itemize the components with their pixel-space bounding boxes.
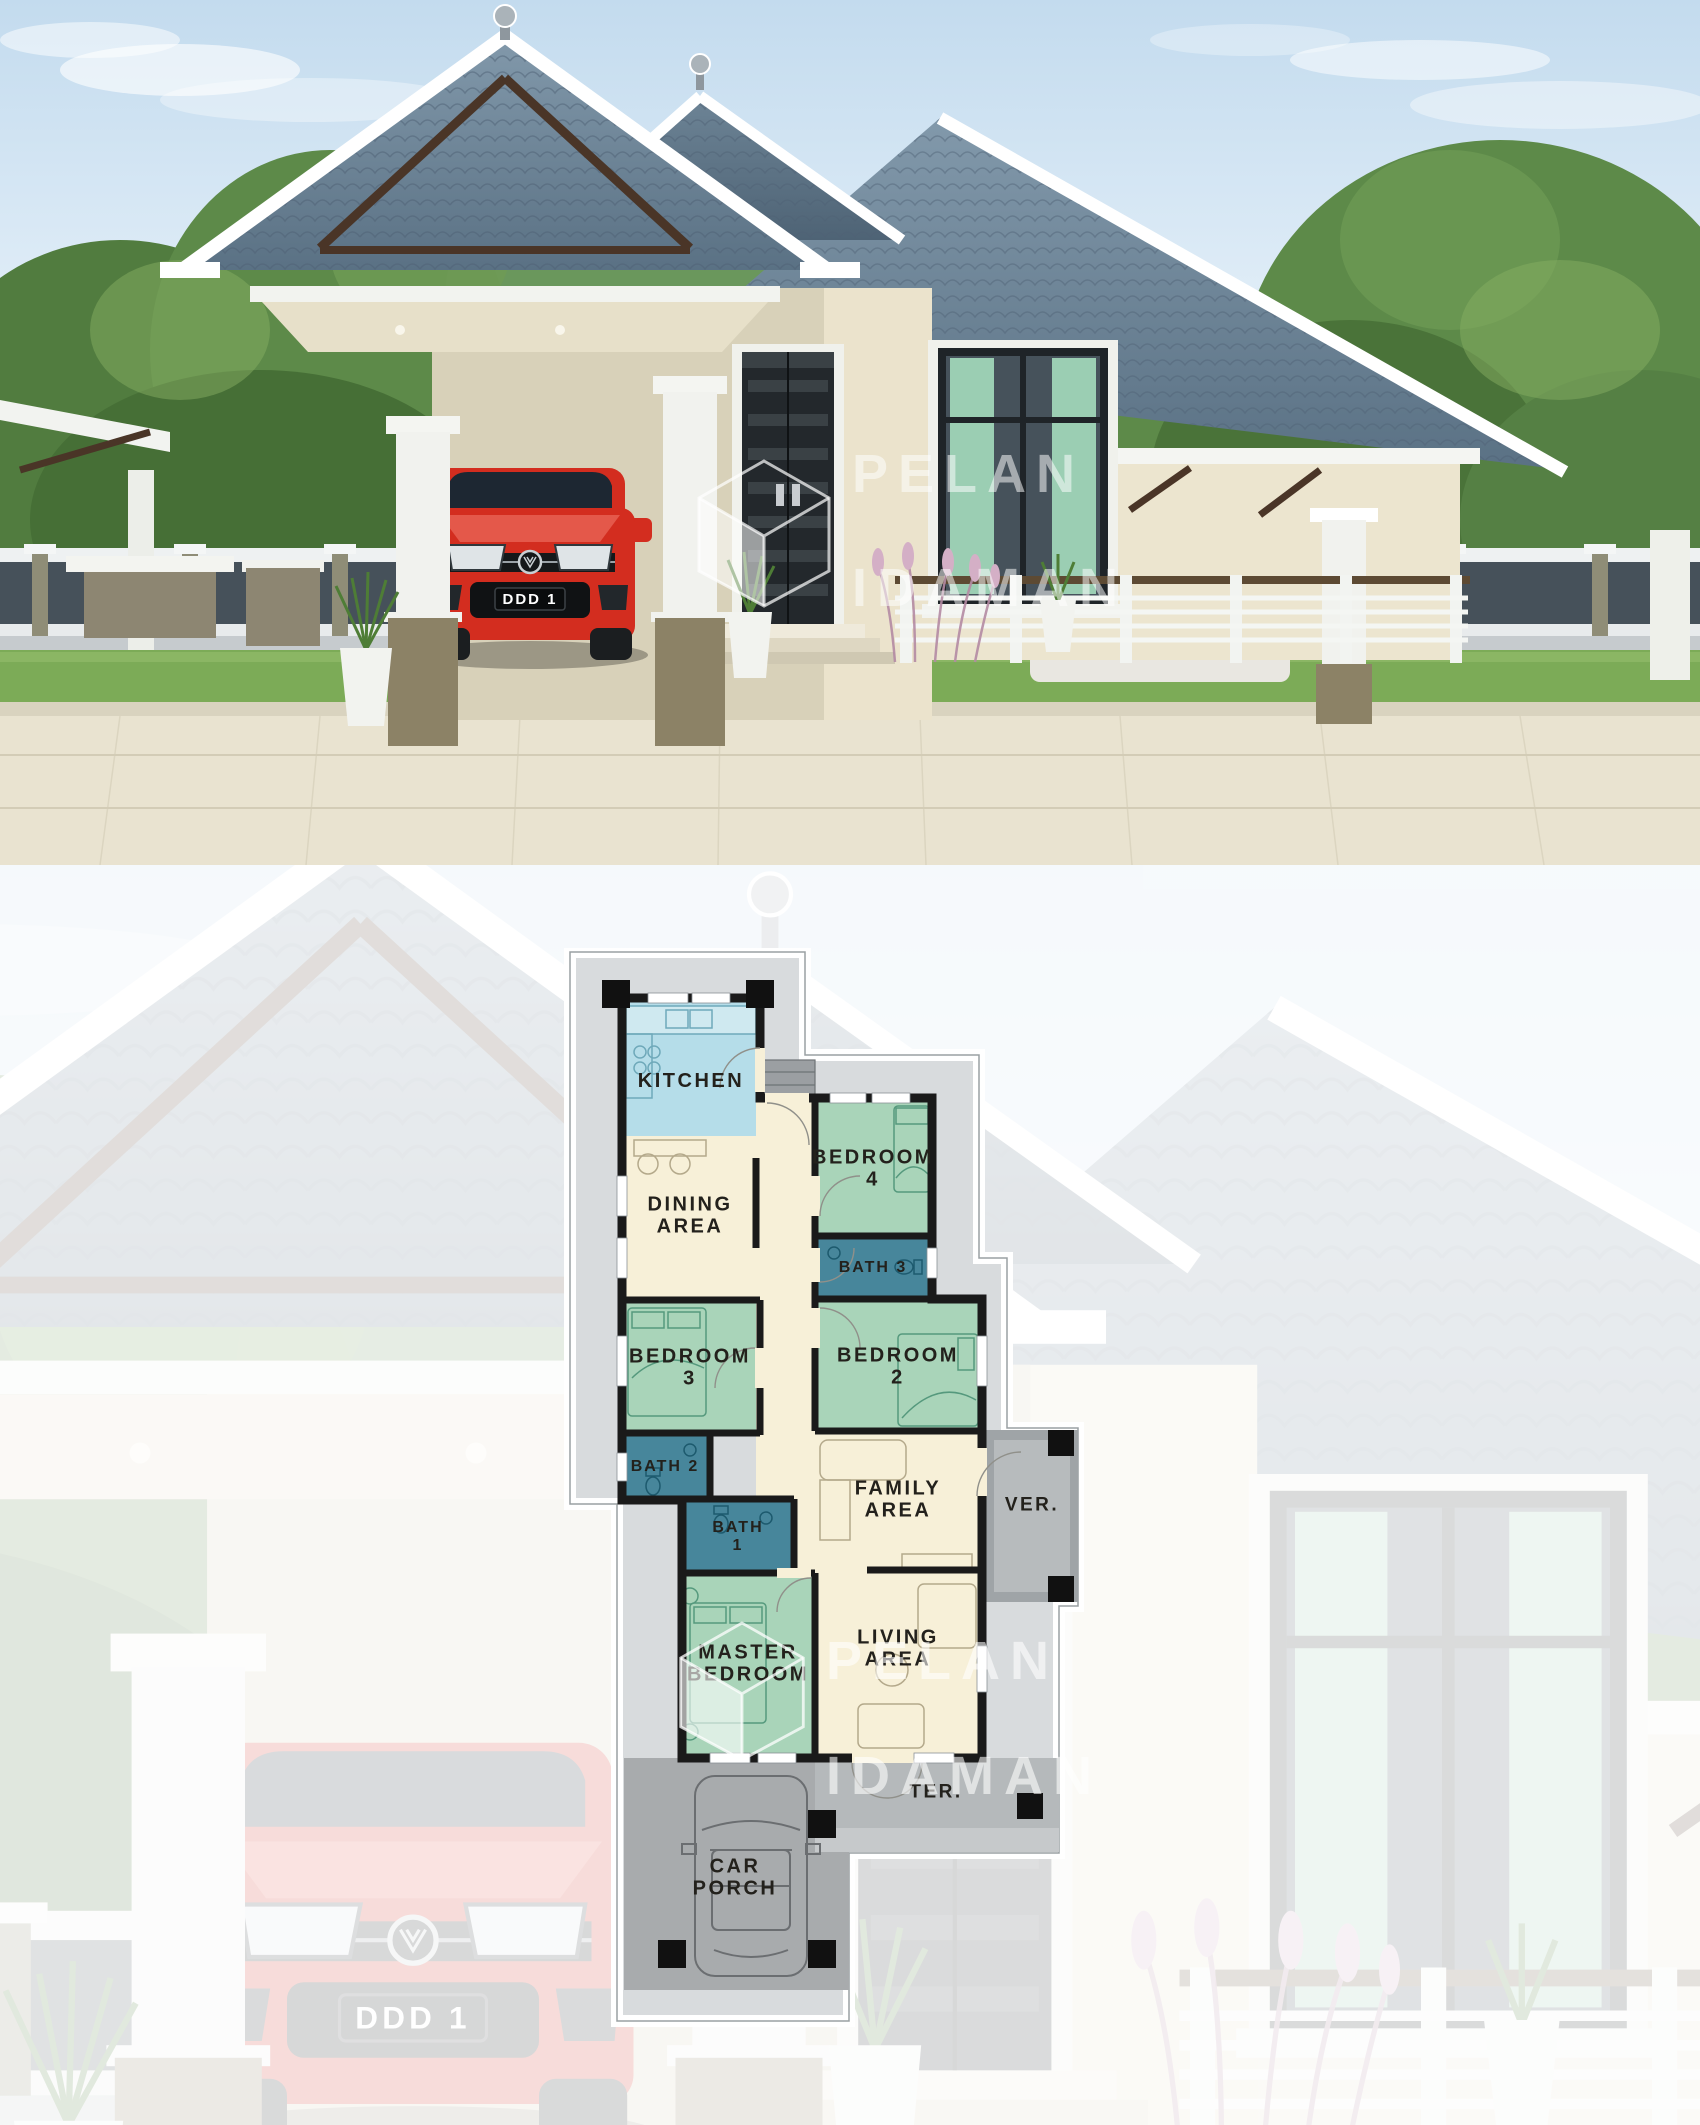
- label-living: LIVING AREA: [857, 1627, 939, 1672]
- label-bath3: BATH 3: [839, 1259, 908, 1277]
- stairs: [762, 1060, 815, 1098]
- terrace-step: [815, 1828, 1059, 1852]
- house-render: DDD 1: [0, 0, 1700, 865]
- label-kitchen: KITCHEN: [638, 1070, 744, 1092]
- page: DDD 1: [0, 0, 1700, 2125]
- label-dining: DINING AREA: [648, 1194, 733, 1239]
- verandah-inner: [994, 1440, 1070, 1592]
- floor-plan: KITCHEN DINING AREA BEDROOM 3 BATH 2 BAT…: [562, 948, 1092, 2048]
- label-bedroom4: BEDROOM 4: [812, 1147, 934, 1192]
- label-terrace: TER.: [909, 1781, 962, 1802]
- label-bedroom2: BEDROOM 2: [837, 1345, 959, 1390]
- label-bath2: BATH 2: [631, 1458, 700, 1476]
- label-bath1: BATH 1: [712, 1519, 763, 1555]
- label-carporch: CAR PORCH: [693, 1856, 778, 1901]
- label-verandah: VER.: [1005, 1494, 1059, 1515]
- label-bedroom3: BEDROOM 3: [629, 1346, 751, 1391]
- label-master: MASTER BEDROOM: [687, 1642, 809, 1687]
- label-family: FAMILY AREA: [855, 1478, 942, 1523]
